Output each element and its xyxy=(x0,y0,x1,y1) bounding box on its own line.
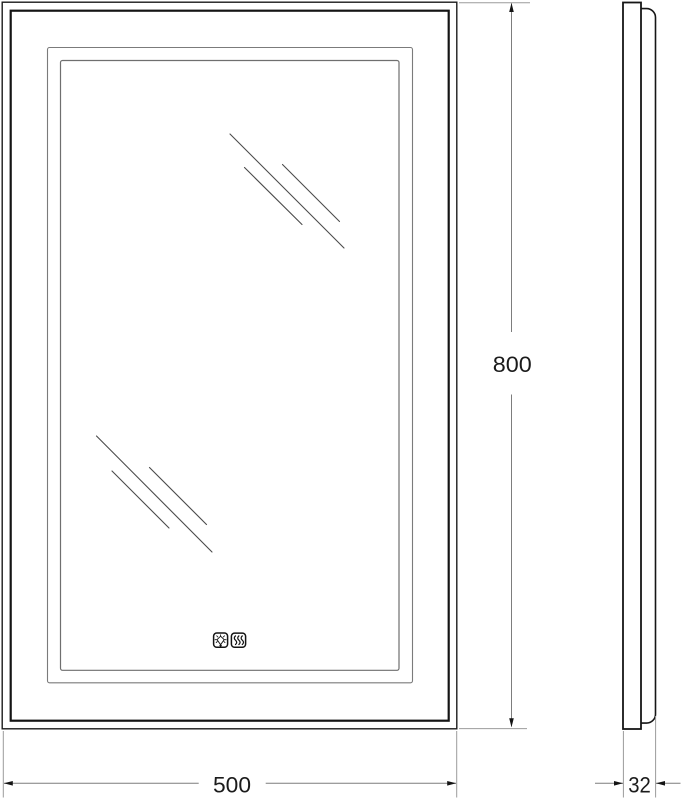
svg-text:800: 800 xyxy=(493,352,532,377)
svg-text:500: 500 xyxy=(213,773,251,798)
svg-text:32: 32 xyxy=(628,773,651,798)
